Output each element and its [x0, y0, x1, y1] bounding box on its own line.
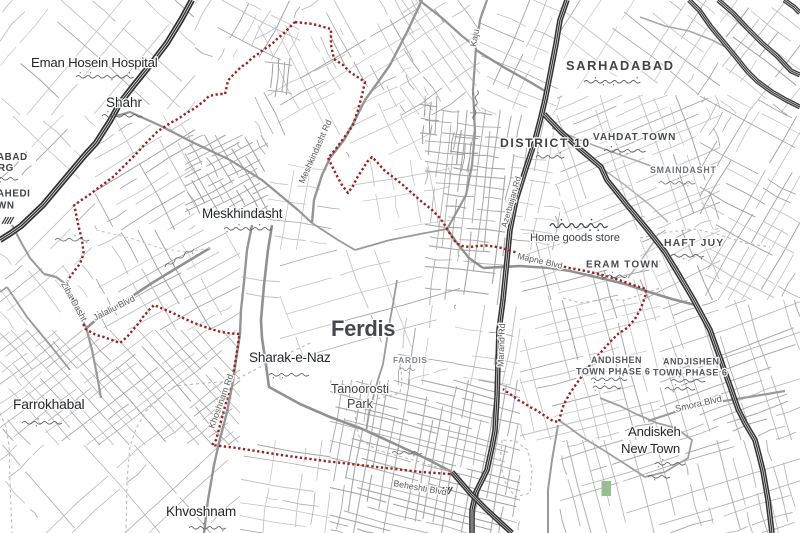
svg-text:HAFT JUY: HAFT JUY: [664, 238, 724, 249]
svg-text:ANDISHEN: ANDISHEN: [591, 355, 642, 365]
svg-text:WN: WN: [0, 201, 15, 212]
svg-text:Farrokhabal: Farrokhabal: [13, 397, 85, 412]
svg-text:Shahr: Shahr: [106, 95, 143, 110]
svg-text:TOWN PHASE 6: TOWN PHASE 6: [653, 368, 727, 378]
svg-text:Park: Park: [347, 397, 374, 411]
svg-text:Meskhindasht: Meskhindasht: [202, 206, 283, 221]
svg-text:Home goods store: Home goods store: [530, 232, 620, 244]
svg-text:RG: RG: [0, 163, 14, 174]
svg-text:ANDJISHEN: ANDJISHEN: [663, 357, 720, 367]
svg-text:Ferdis: Ferdis: [331, 316, 395, 341]
svg-text:ERAM TOWN: ERAM TOWN: [586, 260, 659, 271]
svg-text:Tanoorosti: Tanoorosti: [331, 382, 389, 396]
svg-text:Sharak-e-Naz: Sharak-e-Naz: [249, 350, 331, 365]
svg-text:SMAINDASHT: SMAINDASHT: [650, 165, 717, 175]
svg-text:VAHDAT TOWN: VAHDAT TOWN: [593, 132, 676, 143]
svg-text:TOWN PHASE 6: TOWN PHASE 6: [576, 367, 650, 377]
svg-text:ABAD: ABAD: [0, 152, 28, 163]
svg-text:Andiskeh: Andiskeh: [628, 424, 681, 439]
svg-text:Eman Hosein Hospital: Eman Hosein Hospital: [31, 55, 158, 70]
svg-text:New Town: New Town: [621, 441, 680, 456]
svg-text:DISTRICT 10: DISTRICT 10: [500, 136, 591, 150]
svg-text:AHEDI: AHEDI: [0, 189, 30, 200]
svg-text:Khvoshnam: Khvoshnam: [166, 504, 236, 519]
svg-text:SARHADABAD: SARHADABAD: [566, 58, 675, 73]
svg-text:FARDIS: FARDIS: [393, 355, 428, 365]
svg-text:Marand Rd: Marand Rd: [496, 323, 508, 367]
